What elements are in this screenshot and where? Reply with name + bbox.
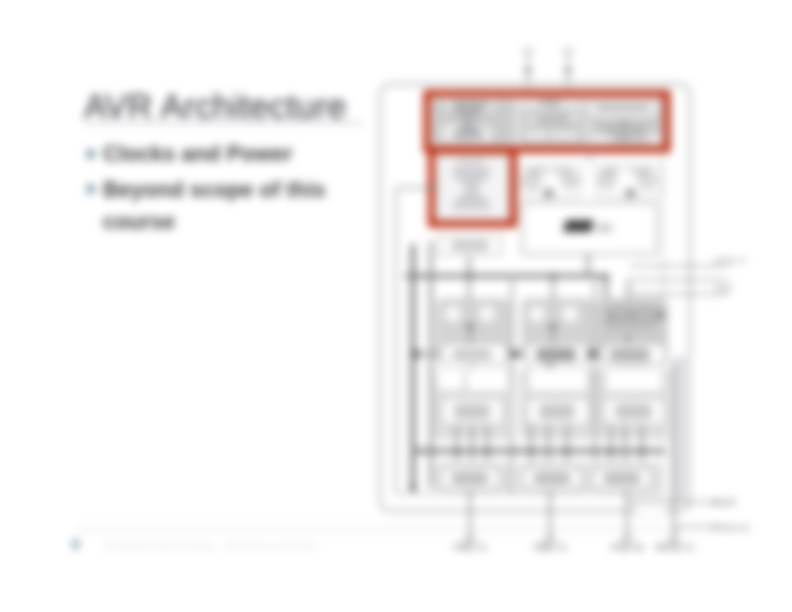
svg-text:PC[0..6]: PC[0..6]	[611, 542, 643, 552]
svg-text:PB[0..7]: PB[0..7]	[534, 542, 566, 552]
svg-text:RESET: RESET	[712, 498, 737, 507]
svg-text:PD[0..7]: PD[0..7]	[454, 542, 486, 552]
svg-text:ADC[6..7]: ADC[6..7]	[655, 542, 693, 552]
svg-text:ADC[6..7]: ADC[6..7]	[714, 258, 746, 265]
svg-text:XTAL[1..2]: XTAL[1..2]	[712, 523, 749, 532]
svg-text:AREF: AREF	[714, 286, 734, 293]
